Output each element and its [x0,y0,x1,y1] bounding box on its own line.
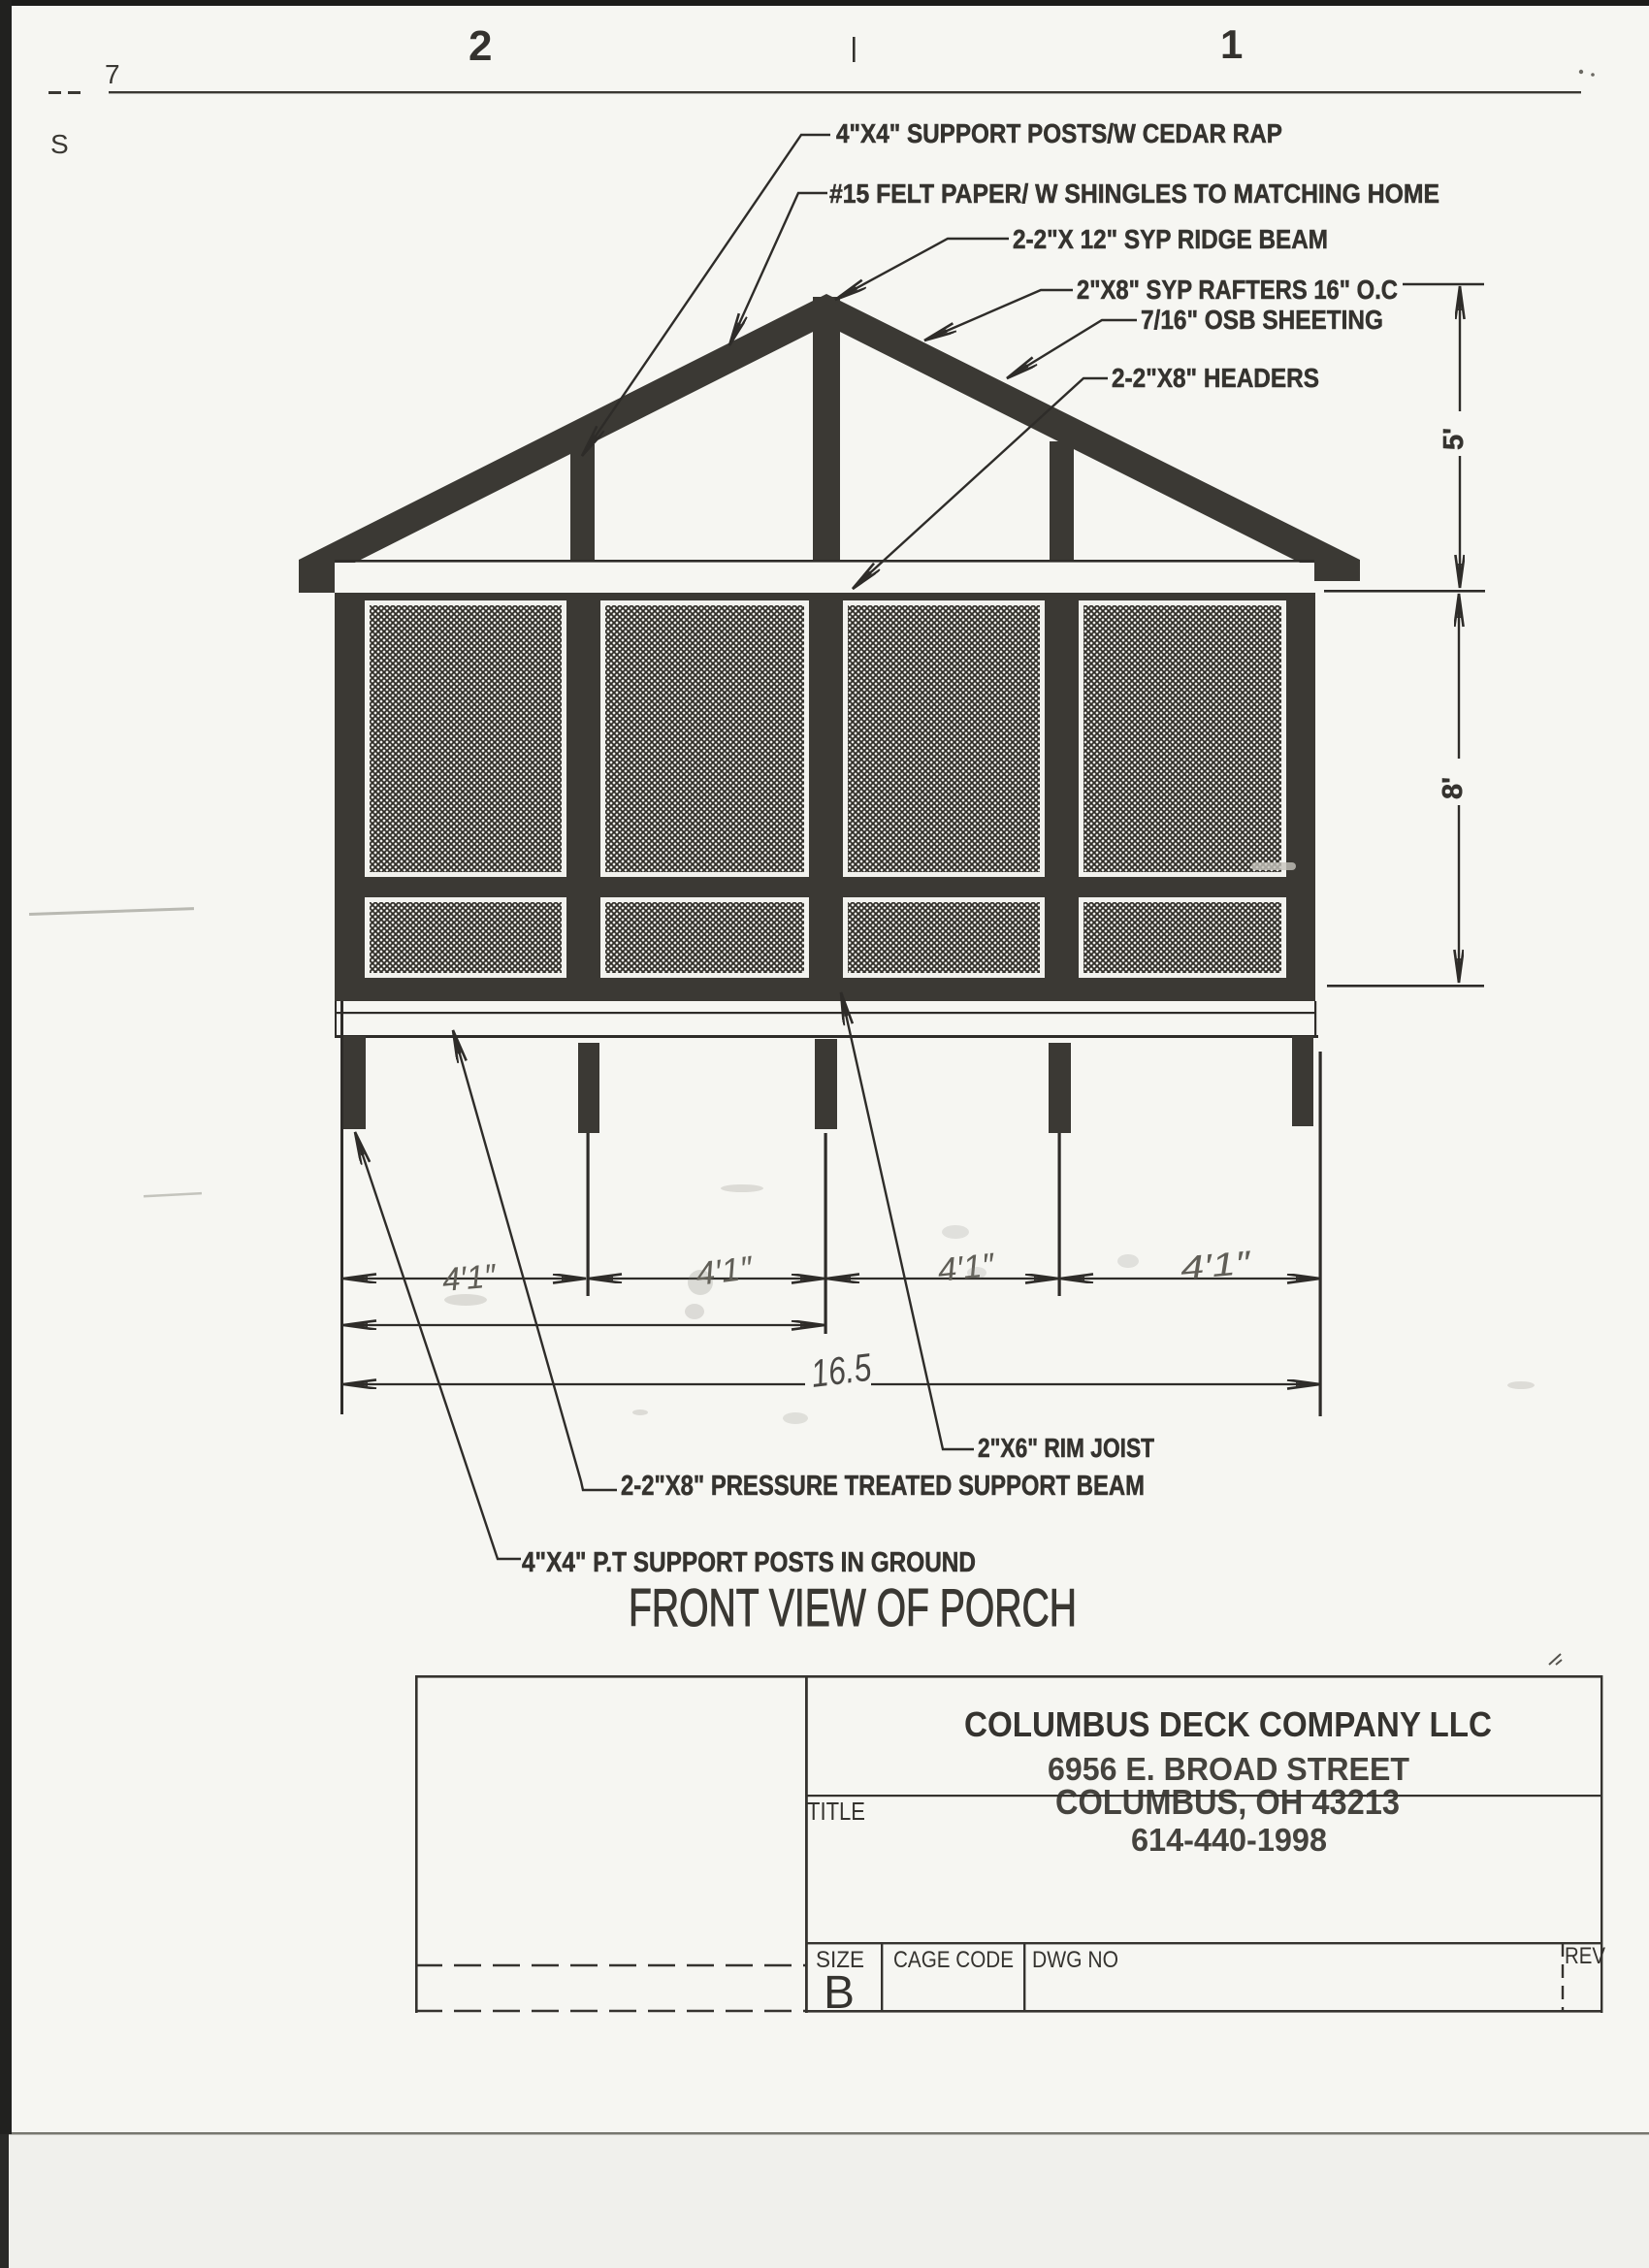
svg-text:2-2"X8" HEADERS: 2-2"X8" HEADERS [1112,363,1319,393]
svg-text:COLUMBUS DECK COMPANY LLC: COLUMBUS DECK COMPANY LLC [964,1704,1492,1744]
svg-text:7/16" OSB SHEETING: 7/16" OSB SHEETING [1141,305,1383,335]
svg-text:614-440-1998: 614-440-1998 [1131,1822,1327,1858]
svg-text:4′1″: 4′1″ [440,1257,498,1299]
svg-text:4′1″: 4′1″ [936,1247,997,1289]
svg-text:2-2"X8" PRESSURE TREATED SUPPO: 2-2"X8" PRESSURE TREATED SUPPORT BEAM [621,1471,1145,1502]
svg-text:4"X4" P.T SUPPORT POSTS IN GRO: 4"X4" P.T SUPPORT POSTS IN GROUND [522,1547,976,1578]
svg-text:4′1″: 4′1″ [1179,1245,1252,1287]
svg-text:7: 7 [105,59,120,89]
svg-text:5': 5' [1439,428,1470,450]
svg-text:2"X8" SYP RAFTERS 16" O.C: 2"X8" SYP RAFTERS 16" O.C [1077,275,1398,305]
svg-text:#15 FELT PAPER/ W SHINGLES TO: #15 FELT PAPER/ W SHINGLES TO MATCHING H… [829,178,1439,209]
svg-text:DWG NO: DWG NO [1032,1947,1118,1973]
svg-text:2: 2 [469,22,492,70]
svg-text:TITLE: TITLE [807,1797,865,1826]
svg-text:8': 8' [1438,777,1469,799]
svg-text:CAGE CODE: CAGE CODE [893,1947,1014,1973]
svg-text:2-2"X 12" SYP RIDGE BEAM: 2-2"X 12" SYP RIDGE BEAM [1013,224,1328,254]
svg-text:S: S [50,129,69,159]
svg-text:COLUMBUS, OH 43213: COLUMBUS, OH 43213 [1055,1782,1400,1822]
svg-text:REV: REV [1565,1943,1605,1969]
svg-text:1: 1 [1220,21,1243,67]
svg-text:16.5: 16.5 [809,1346,874,1396]
svg-text:4"X4" SUPPORT POSTS/W CEDAR RA: 4"X4" SUPPORT POSTS/W CEDAR RAP [836,118,1282,148]
svg-text:2"X6" RIM JOIST: 2"X6" RIM JOIST [978,1433,1154,1463]
svg-text:FRONT VIEW OF PORCH: FRONT VIEW OF PORCH [629,1577,1077,1637]
svg-text:B: B [824,1967,855,2019]
